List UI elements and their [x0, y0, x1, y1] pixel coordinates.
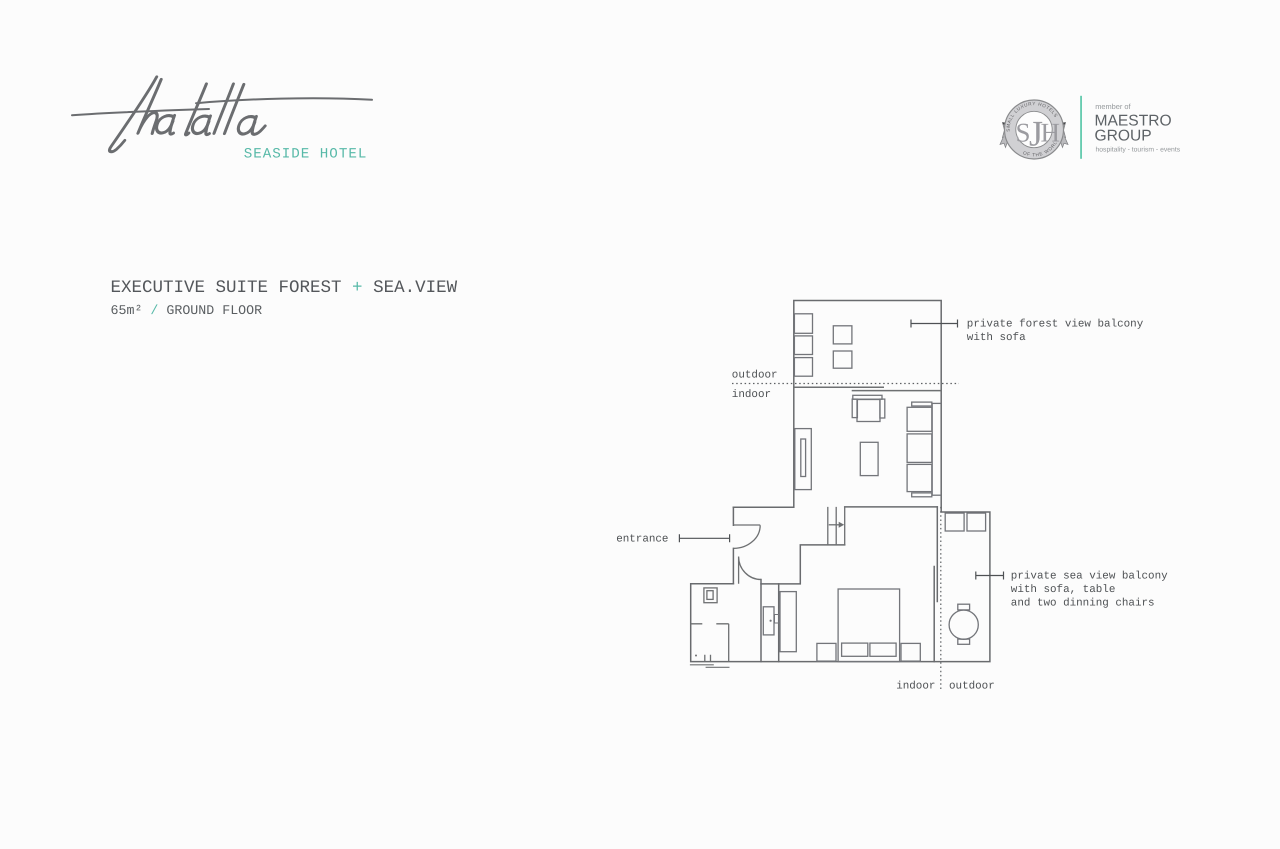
svg-text:with sofa: with sofa	[967, 332, 1026, 344]
svg-text:outdoor: outdoor	[732, 369, 778, 381]
svg-text:outdoor: outdoor	[949, 681, 995, 693]
svg-text:J: J	[1029, 114, 1043, 154]
svg-text:with sofa, table: with sofa, table	[1011, 584, 1116, 596]
svg-text:GROUP: GROUP	[1095, 128, 1152, 145]
svg-text:H: H	[1041, 118, 1061, 148]
svg-text:entrance: entrance	[616, 534, 668, 546]
svg-text:indoor: indoor	[896, 681, 935, 693]
svg-text:and two dinning chairs: and two dinning chairs	[1011, 597, 1155, 609]
svg-text:65m² / GROUND FLOOR: 65m² / GROUND FLOOR	[111, 303, 263, 318]
svg-text:private sea view balcony: private sea view balcony	[1011, 571, 1168, 583]
svg-text:indoor: indoor	[732, 389, 771, 401]
svg-text:SEASIDE HOTEL: SEASIDE HOTEL	[244, 147, 368, 163]
svg-text:hospitality - tourism - events: hospitality - tourism - events	[1096, 146, 1181, 153]
svg-text:member of: member of	[1095, 102, 1131, 111]
svg-text:private forest view balcony: private forest view balcony	[967, 318, 1144, 330]
svg-text:EXECUTIVE SUITE FOREST + SEA.V: EXECUTIVE SUITE FOREST + SEA.VIEW	[111, 278, 458, 298]
